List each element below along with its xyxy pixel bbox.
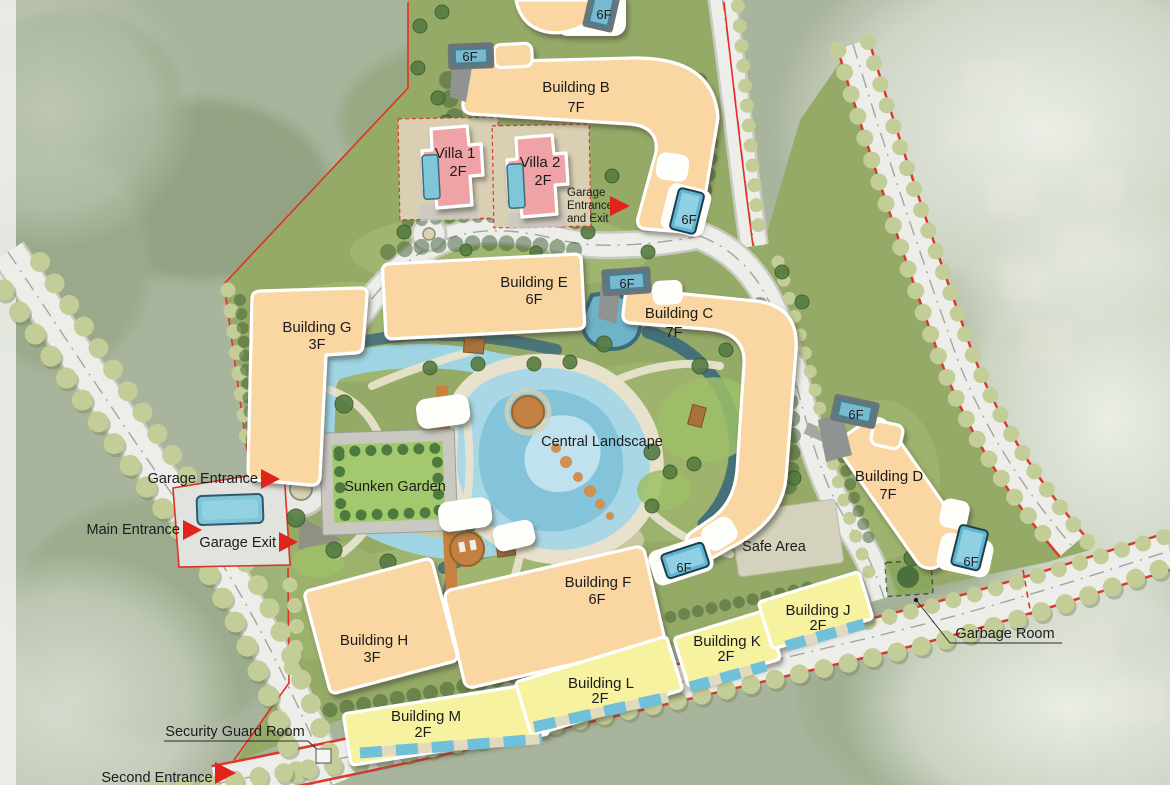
building-e (382, 254, 585, 339)
villa-2-label: Villa 2 (520, 154, 561, 171)
building-h-label: Building H (340, 632, 408, 649)
svg-text:Garage: Garage (567, 187, 605, 199)
building-c-floors: 7F (666, 325, 683, 341)
building-f-floors: 6F (589, 592, 606, 608)
building-b-wing-north (493, 43, 532, 68)
building-g-label: Building G (282, 319, 351, 336)
building-b-label: Building B (542, 79, 610, 96)
building-f-label: Building F (565, 574, 632, 591)
building-d-label: Building D (855, 468, 924, 485)
sunken-garden-label: Sunken Garden (344, 479, 446, 495)
building-e-floors: 6F (526, 292, 543, 308)
left-edge-strip (0, 0, 16, 785)
building-b-floors: 7F (568, 100, 585, 116)
security-guard-room-label: Security Guard Room (165, 724, 304, 740)
villa-1-floors: 2F (450, 164, 467, 180)
marker-label: 6F (848, 407, 863, 422)
building-c-label: Building C (645, 305, 714, 322)
garage-exit-label: Garage Exit (199, 535, 276, 551)
pavilion-south (438, 498, 491, 532)
marker-label: 6F (676, 560, 691, 575)
building-m-floors: 2F (415, 725, 432, 741)
garbage-room-label: Garbage Room (955, 626, 1054, 642)
building-e-label: Building E (500, 274, 568, 291)
building-j-label: Building J (785, 602, 850, 619)
pavilion-north (416, 395, 469, 429)
round-deck-south (450, 532, 484, 566)
villa-1-label: Villa 1 (435, 145, 476, 162)
main-entrance-label: Main Entrance (87, 522, 181, 538)
building-k-floors: 2F (718, 649, 735, 665)
security-guard-room-building (316, 749, 331, 763)
marker-label: 6F (963, 554, 978, 569)
svg-text:and Exit: and Exit (567, 213, 609, 225)
marker-label: 6F (681, 212, 696, 227)
svg-text:Entrance: Entrance (567, 200, 613, 212)
building-l-label: Building L (568, 675, 634, 692)
building-c-balcony-north (653, 281, 681, 303)
building-m-label: Building M (391, 708, 461, 725)
villa-2-floors: 2F (535, 173, 552, 189)
building-d-floors: 7F (880, 487, 897, 503)
marker-label: 6F (596, 7, 611, 22)
building-b-balcony (656, 153, 688, 181)
garage-entrance-label: Garage Entrance (148, 471, 258, 487)
master-plan-map: 6F 6F 6F 6F 6F 6F 6F Build (0, 0, 1170, 785)
building-j-floors: 2F (810, 618, 827, 634)
round-deck-north (512, 396, 544, 428)
building-h-floors: 3F (364, 650, 381, 666)
marker-label: 6F (462, 49, 477, 64)
safe-area-label: Safe Area (742, 539, 807, 555)
site-plan-screenshot: 6F 6F 6F 6F 6F 6F 6F Build (0, 0, 1170, 785)
building-g-floors: 3F (309, 337, 326, 353)
marker-label: 6F (619, 276, 634, 291)
building-l-floors: 2F (592, 691, 609, 707)
building-k-label: Building K (693, 633, 761, 650)
central-landscape-label: Central Landscape (541, 434, 663, 450)
second-entrance-label: Second Entrance (101, 770, 212, 785)
